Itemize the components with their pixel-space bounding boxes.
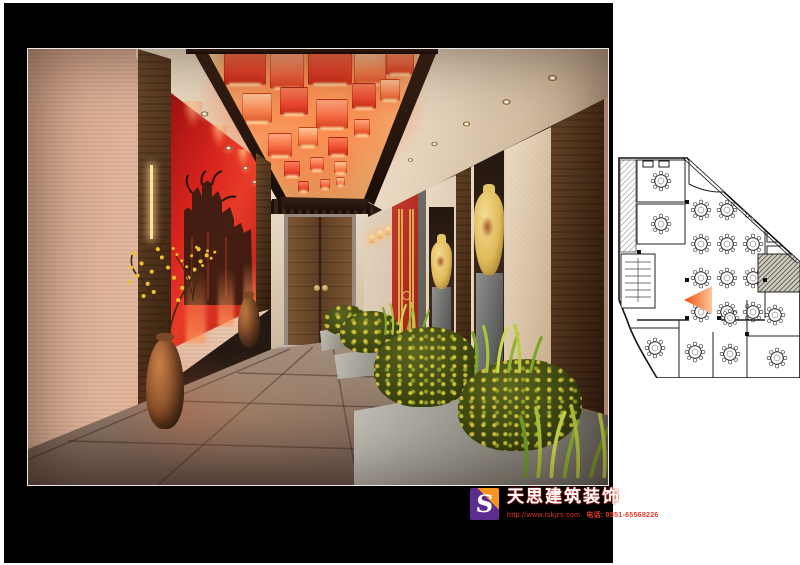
- cube-lantern: [242, 93, 272, 123]
- logo-text-block: 天思建筑装饰 http://www.tskjzs.com电话: 0551-655…: [507, 488, 659, 520]
- yellow-vase-far: [431, 241, 452, 289]
- cube-lantern: [316, 99, 348, 129]
- cube-lantern: [298, 127, 318, 147]
- cube-lantern: [270, 53, 304, 89]
- cube-lantern: [336, 177, 345, 186]
- cube-lantern: [284, 161, 300, 177]
- logo-letter: S: [475, 492, 495, 516]
- cube-lantern: [298, 181, 309, 192]
- cube-lantern: [354, 119, 370, 136]
- column-light-strip: [150, 165, 153, 239]
- ceramic-urn-front: [146, 339, 184, 429]
- company-phone: 电话: 0551-65568226: [586, 512, 658, 519]
- wall-sconce-lamp: [378, 231, 382, 239]
- company-name: 天思建筑装饰: [507, 488, 659, 507]
- flower-branches: [162, 235, 224, 302]
- grass-tuft: [468, 317, 546, 375]
- door-handle: [322, 285, 328, 291]
- ceiling-downlight: [243, 166, 248, 170]
- logo-mark: S: [470, 488, 499, 520]
- company-website: http://www.tskjzs.com: [507, 512, 580, 519]
- cube-lantern: [268, 133, 292, 157]
- cube-lantern: [310, 157, 324, 171]
- yellow-vase-near: [474, 191, 504, 275]
- channel-wood-frame: [186, 49, 438, 54]
- grass-tuft: [514, 393, 609, 486]
- wall-sconce-lamp: [386, 227, 390, 235]
- ceiling-downlight: [548, 75, 557, 81]
- plan-stage: [689, 160, 751, 192]
- ceiling-downlight: [201, 111, 209, 116]
- cube-lantern: [352, 83, 376, 109]
- plan-hatch-strip: [620, 160, 636, 252]
- ceiling-downlight: [225, 146, 231, 150]
- cube-lantern: [328, 137, 348, 156]
- ceramic-urn-back: [238, 297, 260, 347]
- wall-wash-light: [178, 101, 208, 157]
- wood-column-back: [256, 153, 271, 313]
- wall-sconce-lamp: [370, 235, 374, 243]
- company-contact: http://www.tskjzs.com电话: 0551-65568226: [507, 510, 659, 520]
- cube-lantern: [280, 87, 308, 115]
- cube-lantern: [334, 161, 347, 174]
- ceiling-downlight: [502, 99, 510, 104]
- design-presentation-canvas: S 天思建筑装饰 http://www.tskjzs.com电话: 0551-6…: [0, 0, 800, 565]
- ceiling-downlight: [431, 142, 437, 146]
- ceiling-downlight: [408, 158, 413, 161]
- restaurant-floor-plan: [617, 150, 800, 378]
- door-handle: [314, 285, 320, 291]
- company-logo: S 天思建筑装饰 http://www.tskjzs.com电话: 0551-6…: [470, 488, 659, 520]
- cube-lantern: [320, 179, 330, 189]
- hallway-render-photo: [27, 48, 609, 486]
- black-presentation-board: S 天思建筑装饰 http://www.tskjzs.com电话: 0551-6…: [4, 3, 613, 563]
- cube-lantern: [380, 79, 400, 101]
- ceiling-downlight: [463, 122, 470, 127]
